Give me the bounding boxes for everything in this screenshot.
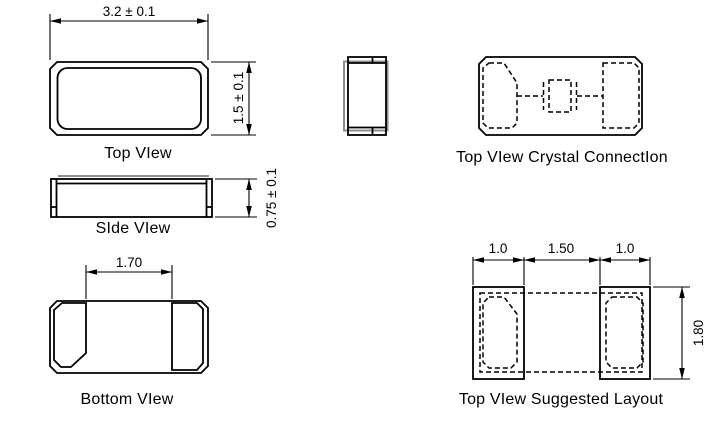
- top-view-width-dimension: 3.2 ± 0.1: [50, 4, 208, 60]
- connection-right-pad: [603, 63, 639, 128]
- crystal-element: [549, 80, 571, 112]
- side-view-body: [51, 179, 212, 217]
- end-view: [344, 57, 388, 135]
- technical-drawing-canvas: 3.2 ± 0.1 1.5 ± 0.1 Top VIew 0.75 ± 0.1 …: [0, 0, 713, 421]
- crystal-symbol: [517, 80, 603, 112]
- bottom-view-label: Bottom VIew: [81, 391, 174, 408]
- top-view-package-outline: [50, 62, 208, 135]
- bottom-view-right-pad: [172, 303, 203, 370]
- bottom-view-left-pad: [54, 303, 86, 367]
- layout-height-dimension: 1.80: [653, 287, 706, 379]
- suggested-layout-label: Top VIew Suggested Layout: [459, 391, 664, 408]
- connection-package-outline: [479, 57, 642, 135]
- top-view: 3.2 ± 0.1 1.5 ± 0.1 Top VIew: [50, 4, 256, 162]
- dimension-text-right-pad: 1.0: [616, 241, 635, 256]
- bottom-view-package-outline: [50, 301, 208, 373]
- layout-package-outline: [480, 293, 642, 372]
- dimension-text-height: 1.80: [691, 320, 706, 346]
- crystal-connection-view: Top VIew Crystal ConnectIon: [456, 57, 668, 166]
- side-view-height-dimension: 0.75 ± 0.1: [215, 168, 279, 228]
- dimension-text-gap: 1.50: [548, 241, 574, 256]
- layout-right-pad-footprint: [606, 297, 643, 368]
- layout-horizontal-dimensions: 1.0 1.50 1.0: [473, 241, 650, 285]
- suggested-layout-view: 1.0 1.50 1.0 1.80 Top VIew Suggested Lay…: [459, 241, 706, 408]
- dimension-text-width: 3.2 ± 0.1: [103, 4, 155, 19]
- drawing-page: 3.2 ± 0.1 1.5 ± 0.1 Top VIew 0.75 ± 0.1 …: [0, 0, 713, 421]
- side-view-label: SIde VIew: [96, 220, 171, 237]
- connection-left-pad: [483, 63, 517, 128]
- top-view-package-lid: [58, 68, 202, 129]
- crystal-connection-label: Top VIew Crystal ConnectIon: [456, 149, 668, 166]
- dimension-text-height: 1.5 ± 0.1: [231, 72, 246, 124]
- top-view-label: Top VIew: [104, 145, 172, 162]
- side-view: 0.75 ± 0.1 SIde VIew: [51, 168, 279, 237]
- layout-left-pad-footprint: [483, 297, 517, 368]
- bottom-view: 1.70 Bottom VIew: [50, 255, 208, 408]
- end-view-body: [348, 57, 386, 135]
- dimension-text-left-pad: 1.0: [489, 241, 508, 256]
- dimension-text-pad-gap: 1.70: [116, 255, 142, 270]
- dimension-text-height: 0.75 ± 0.1: [264, 168, 279, 228]
- bottom-view-pad-gap-dimension: 1.70: [86, 255, 172, 299]
- top-view-height-dimension: 1.5 ± 0.1: [211, 62, 256, 135]
- end-view-lid-offset: [344, 62, 388, 131]
